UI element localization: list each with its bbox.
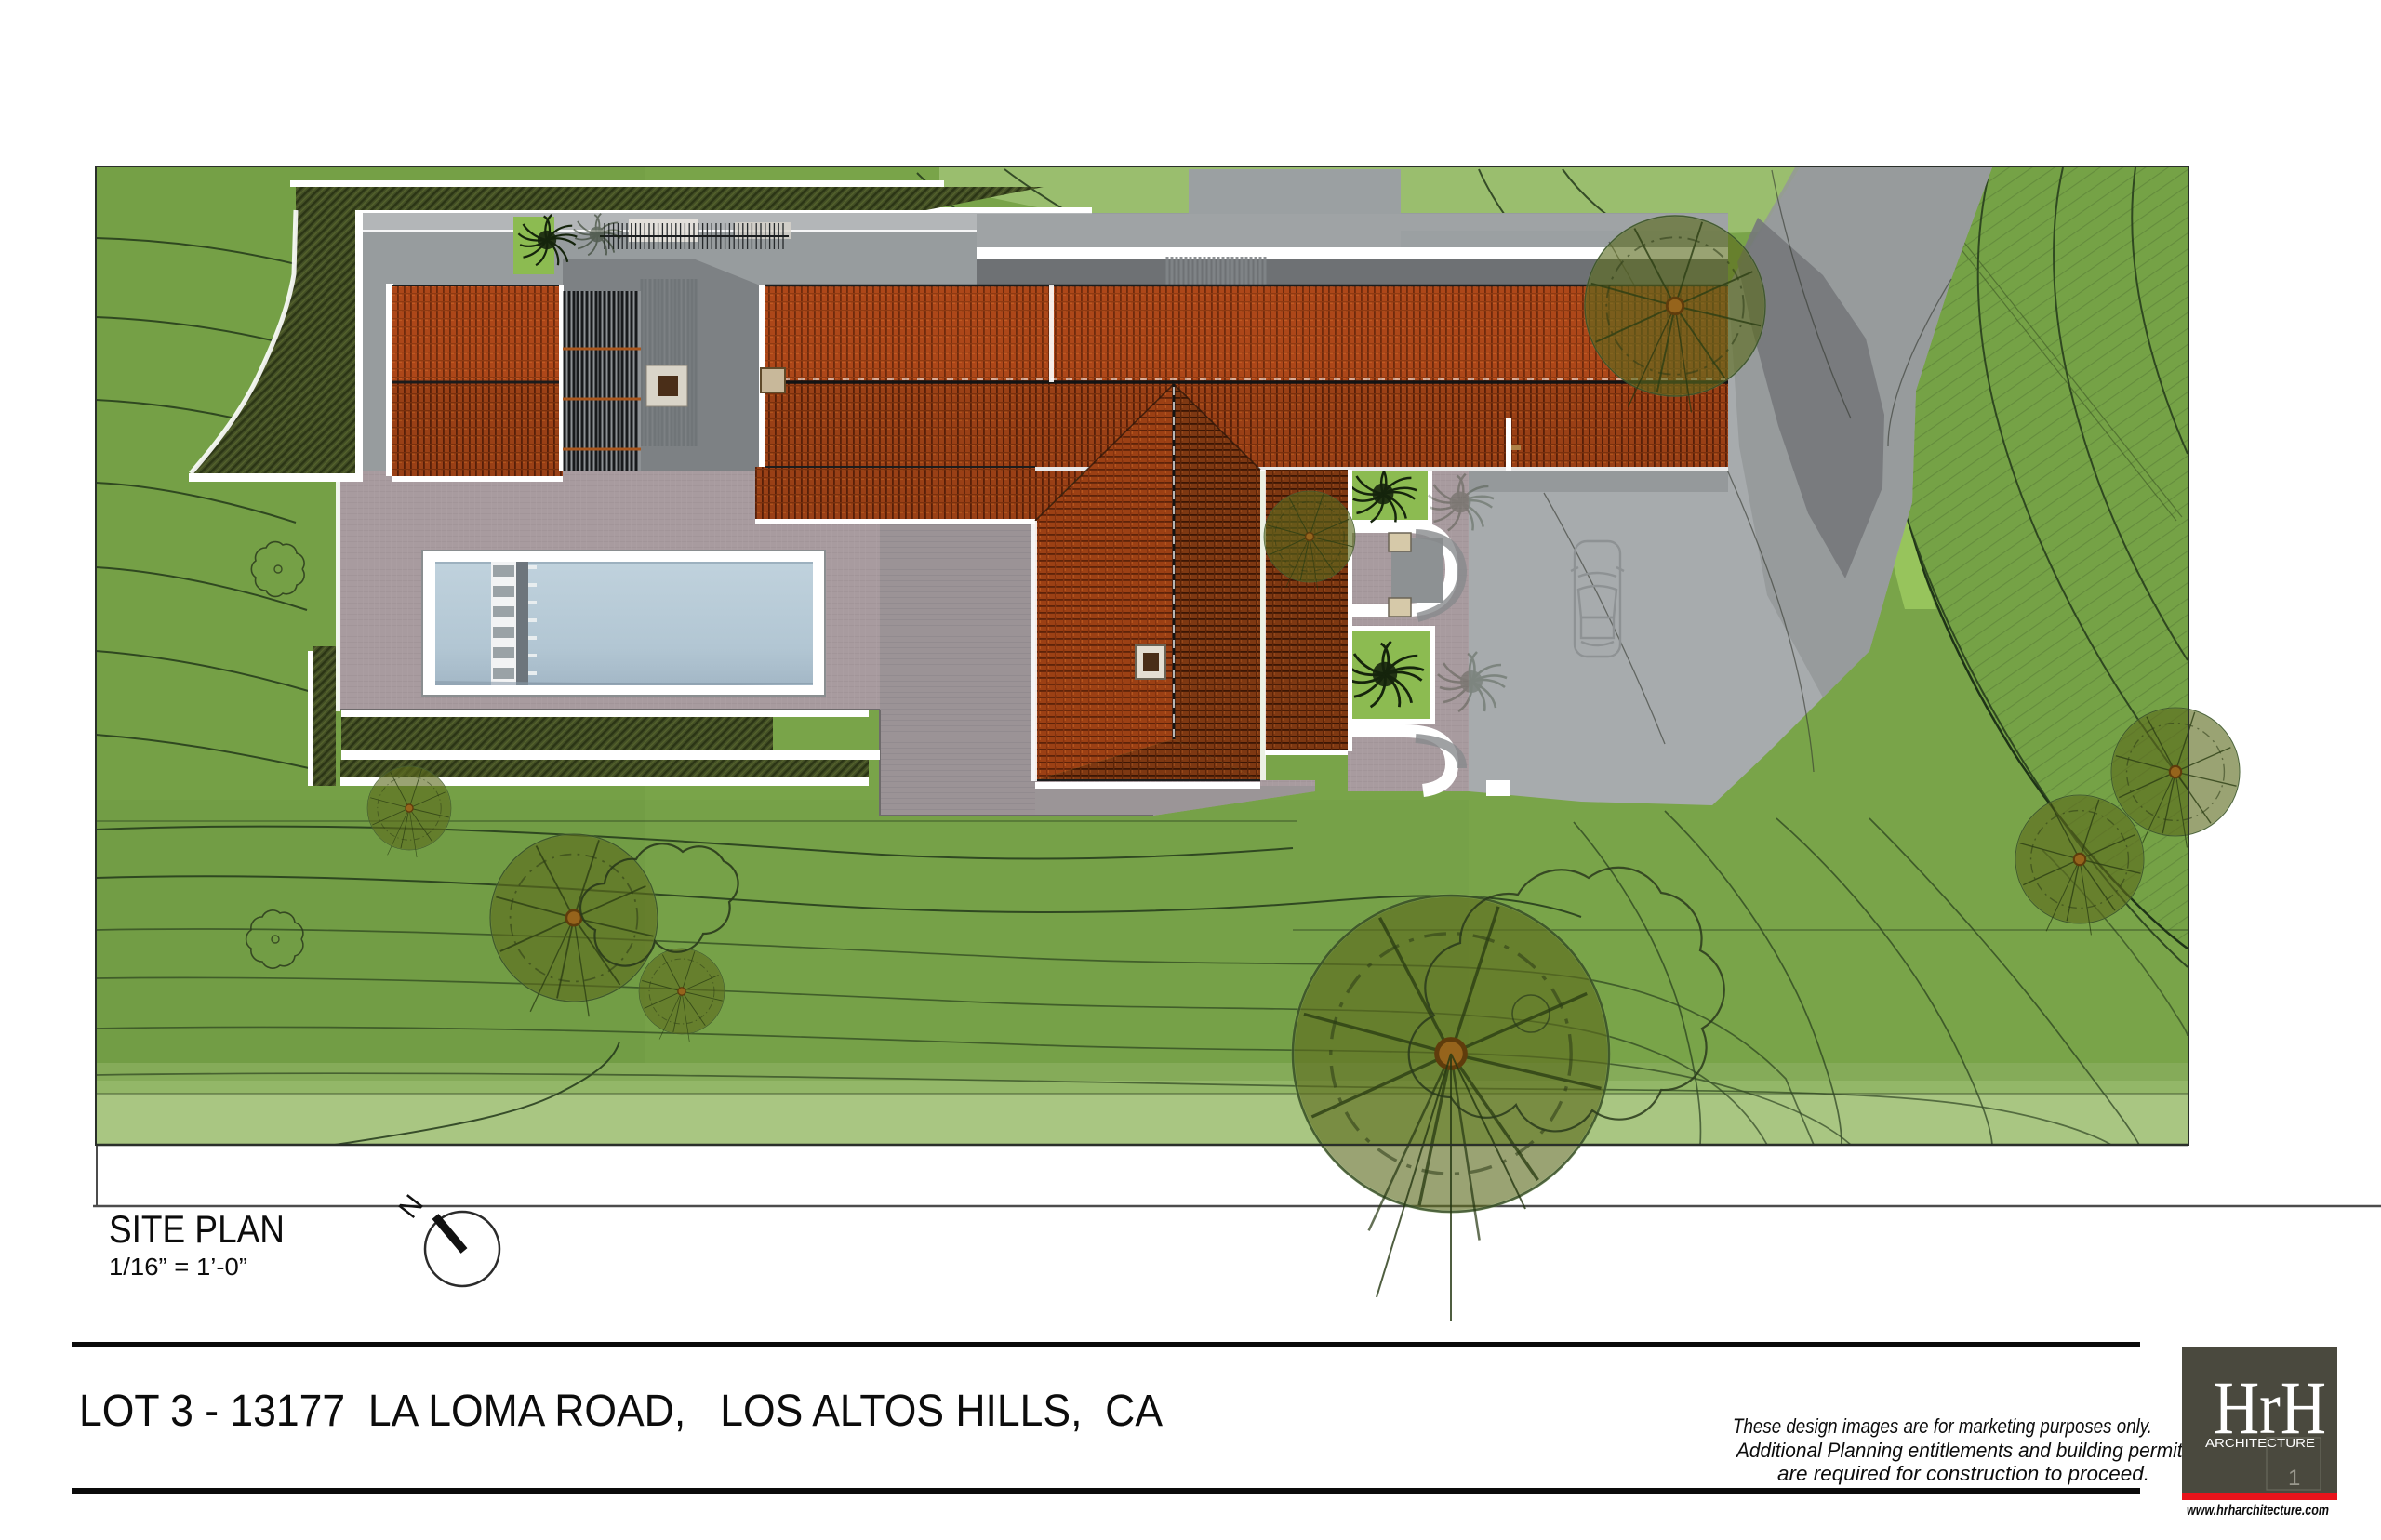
svg-text:1/16” = 1’-0”: 1/16” = 1’-0” [109,1253,247,1281]
svg-text:1: 1 [2288,1466,2300,1491]
svg-text:are required for construction: are required for construction to proceed… [1777,1462,2149,1485]
svg-text:LOT 3 - 13177 LA LOMA ROAD,: LOT 3 - 13177 LA LOMA ROAD, LOS ALTOS HI… [79,1387,1163,1436]
svg-text:SITE PLAN: SITE PLAN [109,1207,285,1251]
svg-text:These design images are for ma: These design images are for marketing pu… [1733,1414,2152,1438]
svg-text:Additional Planning entitlemen: Additional Planning entitlements and bui… [1735,1439,2192,1462]
svg-text:www.hrharchitecture.com: www.hrharchitecture.com [2187,1503,2329,1519]
